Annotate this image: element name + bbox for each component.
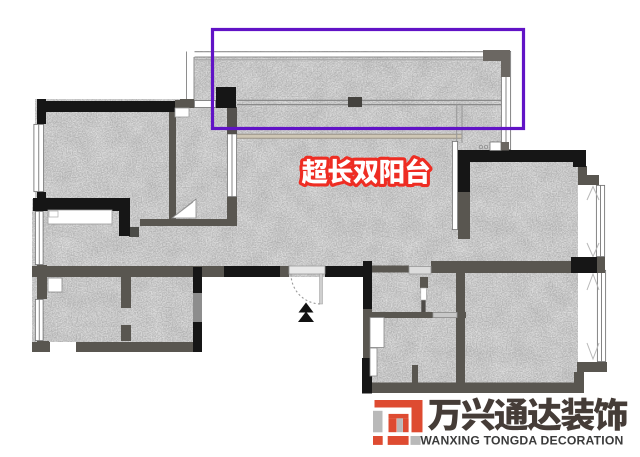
svg-text:WANXING TONGDA DECORATION: WANXING TONGDA DECORATION <box>420 433 623 447</box>
